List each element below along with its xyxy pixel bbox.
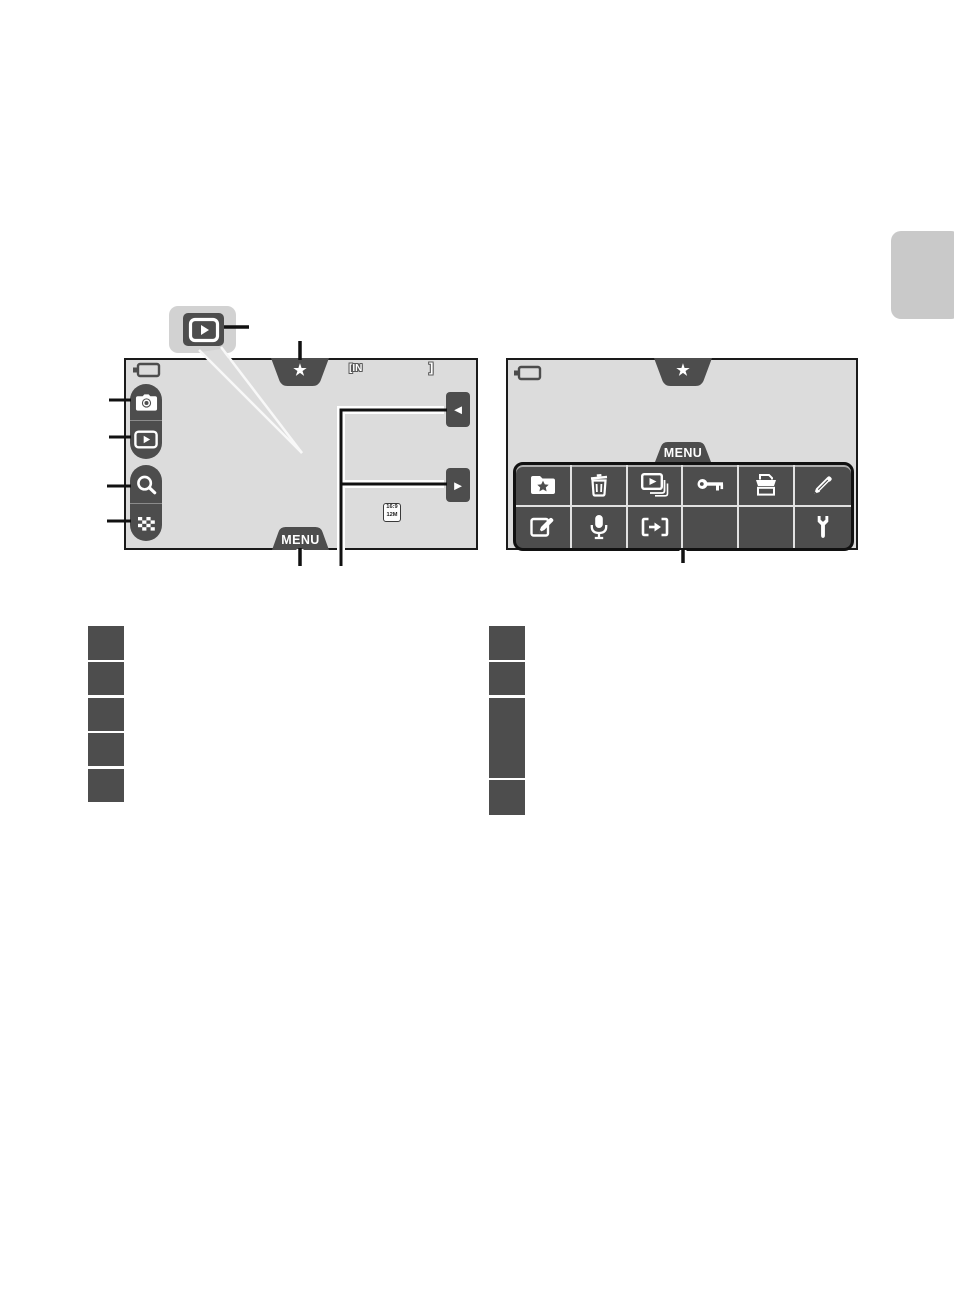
menu-item-favorite-pictures[interactable] <box>516 465 572 507</box>
callout-lines-overlay <box>0 0 954 1313</box>
playback-menu-grid <box>513 462 854 551</box>
shooting-mode-button[interactable] <box>130 384 162 421</box>
playback-zoom-button[interactable] <box>130 466 162 503</box>
next-image-button[interactable]: ► <box>446 468 470 502</box>
legend-marker <box>489 662 525 695</box>
menu-item-delete[interactable] <box>572 465 628 507</box>
wrench-icon <box>816 515 830 540</box>
legend-marker <box>489 626 525 660</box>
frame-counter-bracket: ] <box>429 360 433 375</box>
printer-icon <box>753 473 779 497</box>
image-mode-ratio: 16:9 <box>384 504 399 511</box>
manual-page: ★ [IN ] <box>0 0 954 1313</box>
legend-marker <box>489 780 525 815</box>
menu-item-paint[interactable] <box>795 465 851 507</box>
star-icon: ★ <box>654 363 712 378</box>
copy-icon <box>641 517 669 537</box>
playback-icon <box>134 430 158 449</box>
left-arrow-icon: ◄ <box>452 402 465 417</box>
playback-screen <box>124 358 478 550</box>
star-icon: ★ <box>271 363 329 378</box>
pencil-icon <box>811 473 835 497</box>
legend-marker <box>489 698 525 778</box>
menu-item-print-order[interactable] <box>739 465 795 507</box>
magnifier-icon <box>135 474 157 496</box>
menu-item-voice-memo[interactable] <box>572 507 628 549</box>
battery-icon <box>512 365 542 381</box>
legend-marker <box>88 769 124 802</box>
right-arrow-icon: ► <box>452 478 465 493</box>
image-mode-indicator: 16:9 12M <box>383 503 401 522</box>
battery-icon <box>131 362 161 378</box>
play-icon <box>188 317 220 343</box>
slideshow-icon <box>641 473 669 497</box>
key-icon <box>696 477 724 493</box>
edit-icon <box>530 516 556 538</box>
menu-item-copy[interactable] <box>628 507 684 549</box>
pill-divider <box>130 503 162 504</box>
playback-mode-button[interactable] <box>130 421 162 458</box>
legend-marker <box>88 662 124 695</box>
menu-tab-label: MENU <box>272 533 329 547</box>
menu-item-slide-show[interactable] <box>628 465 684 507</box>
previous-image-button[interactable]: ◄ <box>446 392 470 427</box>
page-section-tab <box>891 231 954 319</box>
legend-marker <box>88 733 124 766</box>
image-mode-size: 12M <box>384 512 399 519</box>
thumbnail-display-button[interactable] <box>130 505 162 542</box>
camera-icon <box>135 393 158 412</box>
legend-marker <box>88 626 124 660</box>
microphone-icon <box>589 514 609 540</box>
menu-cell-empty <box>683 507 739 549</box>
thumbnail-grid-icon <box>138 517 155 531</box>
legend-marker <box>88 698 124 731</box>
menu-item-edit[interactable] <box>516 507 572 549</box>
menu-tab-label: MENU <box>655 446 711 460</box>
favorite-folder-icon <box>529 474 557 496</box>
playback-button-icon <box>183 313 224 346</box>
menu-cell-empty <box>739 507 795 549</box>
internal-memory-indicator: [IN <box>349 363 362 374</box>
menu-item-setup[interactable] <box>795 507 851 549</box>
trash-icon <box>587 473 611 497</box>
menu-item-protect[interactable] <box>683 465 739 507</box>
